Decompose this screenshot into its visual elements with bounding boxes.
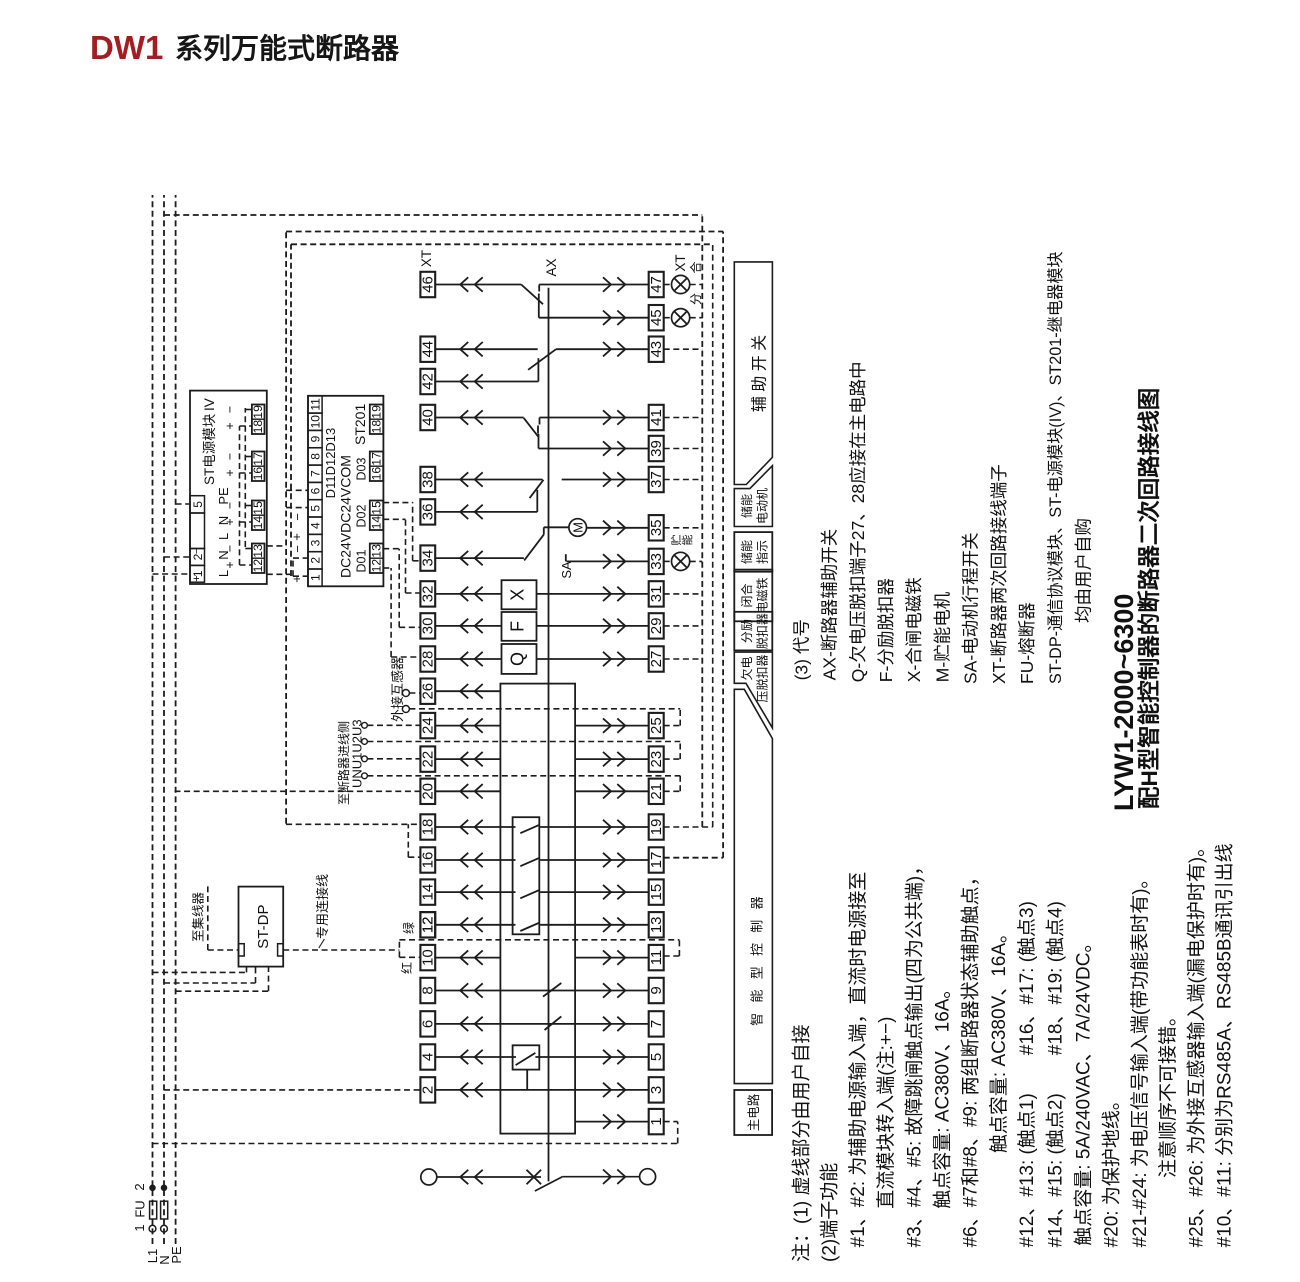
svg-text:专用连接线: 专用连接线 [315,874,330,939]
svg-text:D02: D02 [355,504,369,527]
svg-text:44: 44 [420,341,437,358]
svg-text:PE: PE [169,1246,184,1264]
svg-text:分: 分 [689,293,703,305]
svg-text:9: 9 [309,435,323,442]
svg-text:红: 红 [399,962,414,974]
svg-text:18: 18 [420,819,437,836]
svg-text:17: 17 [251,452,265,466]
svg-text:18: 18 [251,420,265,434]
svg-text:−: − [223,545,237,552]
svg-text:18: 18 [370,420,384,434]
svg-text:30: 30 [420,618,437,635]
svg-text:25: 25 [648,717,665,734]
svg-text:XT: XT [673,254,688,271]
svg-text:欠电: 欠电 [739,656,754,680]
svg-text:X-合闸电磁铁: X-合闸电磁铁 [904,577,924,682]
svg-text:ST-DP: ST-DP [255,905,272,949]
svg-text:24: 24 [420,717,437,734]
svg-text:分励: 分励 [740,619,754,643]
svg-text:−: − [223,502,237,509]
svg-text:L: L [216,570,231,577]
svg-text:15: 15 [251,501,265,515]
svg-text:46: 46 [420,276,437,293]
svg-text:外接互感器: 外接互感器 [390,657,405,722]
svg-text:15: 15 [370,501,384,515]
svg-text:12: 12 [251,559,265,573]
svg-text:储能: 储能 [739,494,754,518]
svg-text:41: 41 [648,409,665,426]
svg-text:28: 28 [420,651,437,668]
svg-text:−: − [223,406,237,413]
svg-text:FU: FU [133,1200,148,1217]
svg-text:6: 6 [309,487,323,494]
svg-text:47: 47 [648,276,665,293]
svg-text:19: 19 [370,405,384,419]
svg-text:D01: D01 [355,549,369,572]
svg-text:LYW1-2000~6300: LYW1-2000~6300 [1109,594,1139,811]
svg-text:10: 10 [420,949,437,966]
svg-text:(3) 代号: (3) 代号 [792,619,812,680]
svg-text:38: 38 [420,471,437,488]
svg-text:45: 45 [648,309,665,326]
svg-text:SA: SA [559,561,574,579]
svg-text:电磁铁: 电磁铁 [755,577,770,613]
svg-text:X: X [508,589,528,601]
svg-text:11: 11 [309,398,323,411]
svg-text:压脱扣器: 压脱扣器 [755,654,770,702]
svg-text:12: 12 [370,559,384,573]
svg-text:储能: 储能 [739,540,754,564]
svg-text:33: 33 [648,553,665,570]
svg-text:注意顺序不可接错。: 注意顺序不可接错。 [1157,1007,1179,1178]
svg-text:配H型智能控制器的断路器二次回路接线图: 配H型智能控制器的断路器二次回路接线图 [1136,388,1162,809]
svg-text:#3、#4、#5: 故障跳闸触点输出(四为公共端)，: #3、#4、#5: 故障跳闸触点输出(四为公共端)， [903,857,925,1248]
svg-text:#21-#24: 为电压信号输入端(带功能表时有)。: #21-#24: 为电压信号输入端(带功能表时有)。 [1129,869,1151,1247]
svg-text:17: 17 [370,452,384,466]
svg-text:Q-欠电压脱扣端子27、28应接在主电路中: Q-欠电压脱扣端子27、28应接在主电路中 [848,361,868,682]
svg-text:2: 2 [132,1183,147,1190]
svg-text:14: 14 [370,516,384,530]
svg-text:13: 13 [648,916,665,933]
svg-text:DC24VDC24VCOM: DC24VDC24VCOM [338,455,354,578]
svg-text:23: 23 [648,751,665,768]
svg-text:+: + [289,533,304,541]
svg-text:5: 5 [648,1053,665,1061]
svg-text:F: F [508,621,528,632]
svg-text:26: 26 [420,683,437,700]
svg-text:10: 10 [309,415,323,429]
svg-text:29: 29 [648,618,665,635]
svg-text:能: 能 [680,535,694,546]
svg-text:11: 11 [648,950,665,966]
svg-text:6: 6 [420,1020,437,1028]
svg-text:触点容量: AC380V、16A。: 触点容量: AC380V、16A。 [988,924,1010,1153]
svg-text:42: 42 [420,373,437,390]
svg-text:40: 40 [420,409,437,426]
svg-text:19: 19 [251,405,265,419]
svg-text:39: 39 [648,440,665,457]
svg-text:(2)端子功能: (2)端子功能 [819,1163,841,1262]
svg-text:5: 5 [191,501,205,508]
svg-text:系列万能式断路器: 系列万能式断路器 [175,32,400,64]
svg-text:辅 助 开 关: 辅 助 开 关 [751,335,769,412]
svg-text:合: 合 [688,261,703,273]
svg-text:AX: AX [544,258,559,276]
svg-text:绿: 绿 [401,922,416,934]
svg-text:15: 15 [648,884,665,901]
svg-text:闭合: 闭合 [739,583,754,607]
svg-text:16: 16 [251,467,265,481]
svg-text:32: 32 [420,586,437,603]
svg-text:D03: D03 [355,457,369,480]
svg-text:ST-DP-通信协议模块、ST-电源模块(IV)、ST201: ST-DP-通信协议模块、ST-电源模块(IV)、ST201-继电器模块 [1047,251,1065,684]
svg-text:8: 8 [309,453,323,460]
svg-text:4: 4 [420,1053,437,1061]
svg-text:27: 27 [648,651,665,668]
svg-text:1: 1 [309,574,323,581]
svg-text:2: 2 [309,557,323,564]
svg-text:IV: IV [202,398,217,411]
svg-text:AX-断路器辅助开关: AX-断路器辅助开关 [820,529,840,681]
svg-text:DW1: DW1 [90,29,163,66]
svg-text:+: + [191,575,203,581]
svg-text:13: 13 [251,544,265,558]
svg-text:注：(1) 虚线部分由用户自接: 注：(1) 虚线部分由用户自接 [791,1024,813,1262]
svg-text:至集线器: 至集线器 [191,891,206,942]
svg-text:F-分励脱扣器: F-分励脱扣器 [876,578,896,682]
svg-text:指示: 指示 [755,540,770,564]
svg-text:4: 4 [309,522,323,529]
svg-text:ST电源模块: ST电源模块 [202,413,217,485]
svg-text:M: M [570,522,585,533]
svg-text:2: 2 [420,1086,437,1094]
svg-text:+: + [223,518,237,525]
svg-text:20: 20 [420,783,437,800]
svg-text:均由用户自购: 均由用户自购 [1073,518,1093,623]
svg-text:主电路: 主电路 [746,1093,761,1131]
svg-text:−: − [290,545,305,553]
svg-text:37: 37 [648,471,665,488]
svg-text:#10、#11: 分别为RS485A、RS485B通讯引出线: #10、#11: 分别为RS485A、RS485B通讯引出线 [1214,843,1236,1247]
svg-text:触点容量: AC380V、16A。: 触点容量: AC380V、16A。 [932,980,954,1209]
svg-text:SA-电动机行程开关: SA-电动机行程开关 [961,532,981,684]
svg-text:14: 14 [251,516,265,530]
svg-text:−: − [290,513,305,521]
svg-text:电动机: 电动机 [756,488,770,524]
svg-text:UNU1U2U3: UNU1U2U3 [350,719,365,788]
svg-text:−: − [191,548,203,554]
svg-text:7: 7 [648,1020,665,1028]
svg-text:L: L [216,533,231,540]
svg-text:14: 14 [420,884,437,901]
svg-text:+: + [223,469,237,476]
svg-text:22: 22 [420,751,437,768]
svg-text:#25、#26: 为外接互感器输入端(漏电保护时有)。: #25、#26: 为外接互感器输入端(漏电保护时有)。 [1185,838,1207,1248]
svg-text:13: 13 [370,544,384,558]
svg-text:31: 31 [648,586,665,603]
svg-text:#14、#15: (触点2) #18、#19: (触点4): #14、#15: (触点2) #18、#19: (触点4) [1044,901,1066,1247]
svg-text:7: 7 [309,470,323,477]
svg-text:43: 43 [648,341,665,358]
svg-text:XT-断路器两次回路接线端子: XT-断路器两次回路接线端子 [989,464,1009,684]
svg-text:+: + [223,561,237,568]
svg-text:+: + [223,422,237,429]
svg-text:1: 1 [132,1224,147,1231]
svg-text:Q: Q [508,652,528,666]
svg-text:17: 17 [648,852,665,869]
svg-text:34: 34 [420,550,437,567]
svg-text:#6、#7和#8、#9: 两组断路器状态辅助触点，: #6、#7和#8、#9: 两组断路器状态辅助触点， [960,867,982,1247]
svg-text:ST201: ST201 [352,404,368,445]
svg-text:#20: 为保护地线。: #20: 为保护地线。 [1101,1091,1123,1247]
svg-text:#12、#13: (触点1) #16、#17: (触点3): #12、#13: (触点1) #16、#17: (触点3) [1016,901,1038,1247]
svg-text:触点容量: 5A/240VAC、7A/24VDC。: 触点容量: 5A/240VAC、7A/24VDC。 [1073,933,1095,1245]
svg-text:−: − [223,453,237,460]
svg-text:16: 16 [420,852,437,869]
svg-text:M-贮能电机: M-贮能电机 [932,591,952,682]
svg-text:XT: XT [419,250,434,267]
svg-text:#1、#2: 为辅助电源输入端，直流时电源接至: #1、#2: 为辅助电源输入端，直流时电源接至 [847,872,869,1248]
svg-text:3: 3 [648,1086,665,1094]
svg-text:35: 35 [648,519,665,536]
svg-text:智能型控制器: 智能型控制器 [750,886,765,1026]
svg-text:36: 36 [420,504,437,521]
svg-text:9: 9 [648,986,665,994]
svg-text:1: 1 [648,1117,665,1125]
svg-text:19: 19 [648,819,665,836]
svg-text:16: 16 [370,467,384,481]
svg-text:5: 5 [309,505,323,512]
svg-text:8: 8 [420,986,437,994]
svg-text:12: 12 [420,916,437,933]
svg-text:FU-熔断器: FU-熔断器 [1017,602,1037,684]
svg-text:21: 21 [648,783,665,800]
svg-text:脱扣器: 脱扣器 [755,613,770,649]
svg-text:直流模块转入端(注:+−): 直流模块转入端(注:+−) [875,1017,897,1209]
svg-text:D11D12D13: D11D12D13 [323,428,338,499]
svg-text:3: 3 [309,539,323,546]
